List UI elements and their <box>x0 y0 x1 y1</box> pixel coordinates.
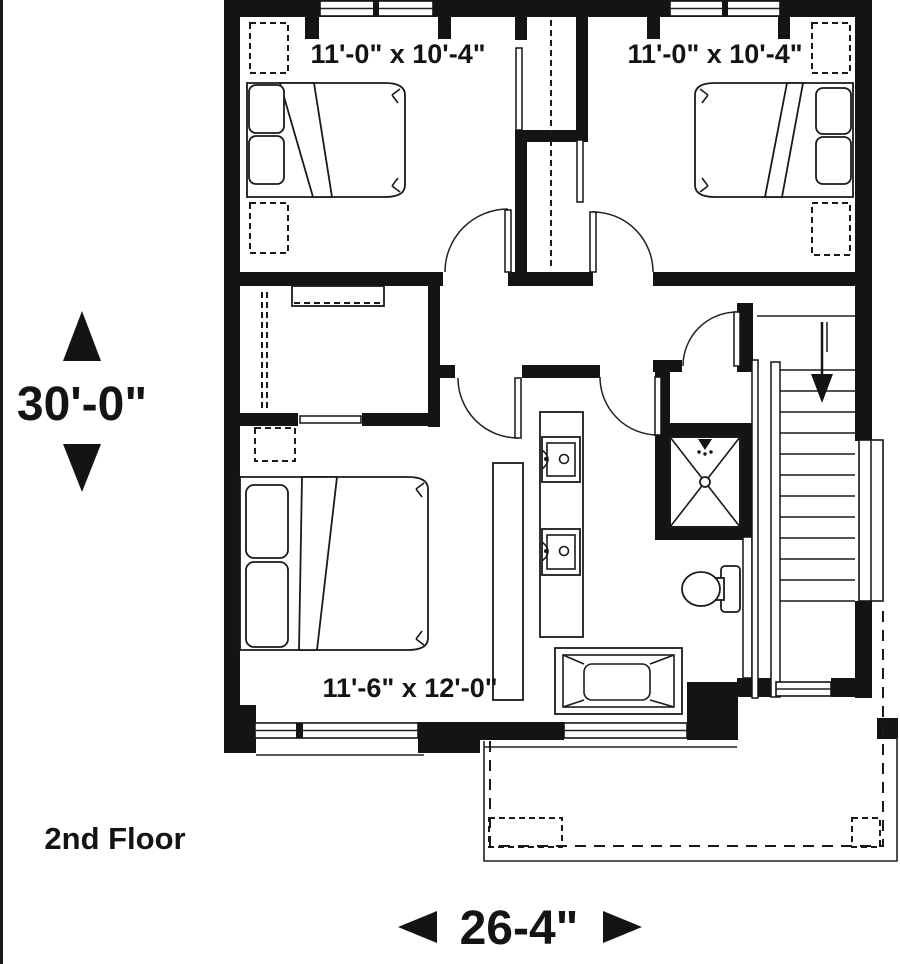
toilet-icon <box>682 566 740 612</box>
scan-edge-artifact <box>0 0 3 964</box>
room-size-label: 11'-0" x 10'-4" <box>627 39 802 69</box>
down-arrow-icon <box>63 444 101 492</box>
window-bottom-bedroom <box>255 723 418 738</box>
closet-dashed-box <box>250 23 288 73</box>
right-arrow-icon <box>603 911 642 943</box>
door-linen-closet <box>683 312 740 366</box>
pillow-icon <box>816 137 851 184</box>
room-size-label: 11'-0" x 10'-4" <box>310 39 485 69</box>
closet-dashed-box <box>812 203 850 255</box>
floor-plan-drawing: 11'-0" x 10'-4" 11'-0" x 10'-4" 11'-6" x… <box>0 0 900 964</box>
bathtub-icon <box>555 648 682 714</box>
width-dimension-label: 26-4" <box>460 902 579 955</box>
bathroom <box>540 412 740 714</box>
bedroom-top-right: 11'-0" x 10'-4" <box>627 23 853 255</box>
door-walkin-closet-leaf <box>300 416 361 423</box>
closet-dashed-box <box>250 203 288 253</box>
sink-icon <box>542 437 580 482</box>
door-bedroom-bottom <box>458 378 521 438</box>
window-stair-hall <box>776 682 831 696</box>
pillow-icon <box>816 88 851 134</box>
floor-plan-page: 11'-0" x 10'-4" 11'-0" x 10'-4" 11'-6" x… <box>0 0 900 964</box>
bedroom-bottom: 11'-6" x 12'-0" <box>240 428 523 703</box>
bathroom-half-wall <box>743 537 752 678</box>
floor-name-label: 2nd Floor <box>44 821 185 856</box>
wall-bumpout <box>877 718 898 739</box>
left-arrow-icon <box>398 911 437 943</box>
pillow-icon <box>249 85 284 133</box>
window-stair-side <box>859 440 883 601</box>
door-bathroom <box>600 377 661 435</box>
pillow-icon <box>246 485 288 558</box>
stairs <box>780 322 855 601</box>
porch-post-dashed <box>489 818 562 847</box>
window-top-left <box>320 1 433 16</box>
closet-dashed-box <box>812 23 850 73</box>
stairwell-edge <box>752 360 758 698</box>
sink-icon <box>542 529 580 575</box>
door-bedroom-top-right <box>590 212 653 272</box>
pillow-icon <box>249 136 284 184</box>
dresser-icon <box>493 463 523 700</box>
bedroom-top-left: 11'-0" x 10'-4" <box>247 23 486 253</box>
window-bathroom <box>564 723 687 738</box>
up-arrow-icon <box>63 311 101 361</box>
shower-icon <box>670 437 740 527</box>
stair-treads <box>780 370 855 601</box>
door-bedroom-top-left <box>445 209 511 272</box>
pillow-icon <box>246 562 288 647</box>
door-closet-lower-leaf <box>577 140 583 202</box>
depth-dimension-label: 30'-0" <box>17 378 147 431</box>
window-top-right <box>670 1 780 16</box>
closet-dashed-box <box>255 428 295 461</box>
porch-roof-outline <box>484 737 897 861</box>
stair-railing <box>771 362 780 697</box>
room-size-label: 11'-6" x 12'-0" <box>322 673 497 703</box>
porch-post-dashed <box>852 818 880 847</box>
door-closet-upper-leaf <box>516 48 522 130</box>
